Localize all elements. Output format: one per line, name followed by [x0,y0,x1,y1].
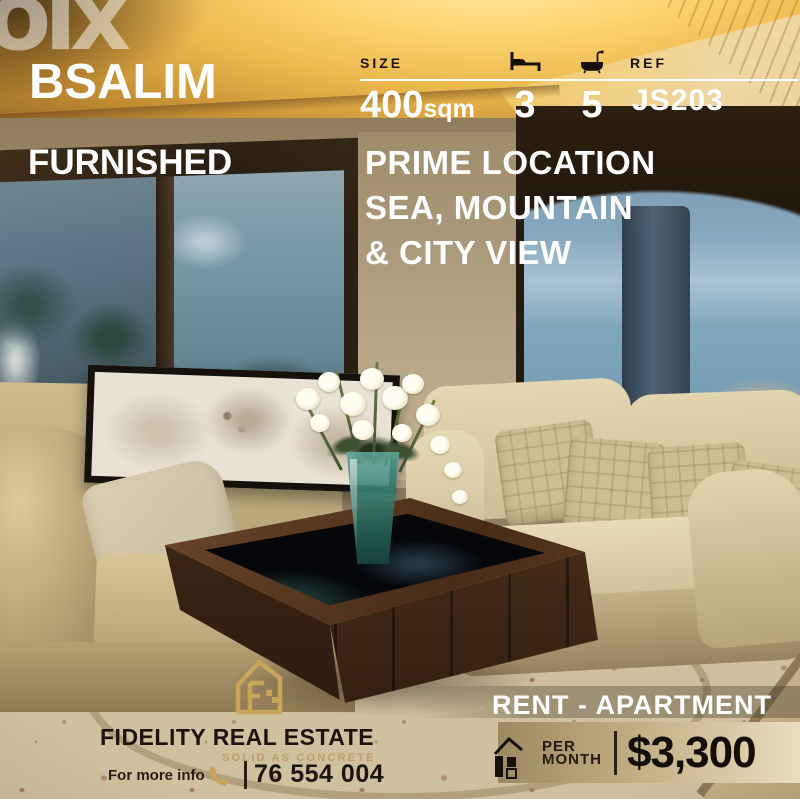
fidelity-house-logo [228,652,284,725]
bath-icon [572,49,612,80]
orchid-bloom [444,462,462,478]
orchid-bloom [360,368,384,390]
agency-name: FIDELITY REAL ESTATE [100,724,374,751]
orchid-bloom [340,392,366,416]
highlight-line-2: SEA, MOUNTAIN [365,185,656,230]
specs-divider-line [360,79,798,81]
orchid-bloom [452,490,468,504]
furnished-label: FURNISHED [28,143,232,183]
more-info-label: For more info [108,767,205,784]
orchid-bloom [402,374,424,394]
price-band: PER MONTH $3,300 [498,722,800,783]
price-divider [614,731,617,775]
orchid-bloom [352,420,374,440]
highlight-line-3: & CITY VIEW [365,230,656,275]
ref-label: REF [630,55,667,71]
orchid-bloom [416,404,440,426]
phone-divider [244,761,247,789]
size-value: 400sqm [360,84,475,127]
price-period: PER MONTH [542,740,602,766]
size-number: 400 [360,84,423,126]
period-line-2: MONTH [542,753,602,766]
orchid-bloom [318,372,340,392]
orchid-bloom [296,388,320,410]
price-amount: $3,300 [627,728,756,778]
house-icon [491,733,525,786]
listing-type-label: RENT - APARTMENT [492,690,772,721]
phone-icon [206,764,234,795]
phone-number: 76 554 004 [254,760,384,789]
size-unit: sqm [423,95,474,123]
location-title: BSALIM [29,54,217,110]
specs-bar: SIZE REF 400sqm 3 5 JS203 [360,55,798,117]
bed-icon [505,49,545,78]
right-sofa-arm [685,465,800,650]
ref-value: JS203 [632,84,724,118]
bedrooms-value: 3 [505,84,545,127]
orchid-bloom [430,436,450,454]
size-label: SIZE [360,55,403,71]
orchid-bloom [310,414,330,432]
orchid-bloom [392,424,412,442]
bathrooms-value: 5 [572,84,612,127]
highlight-line-1: PRIME LOCATION [365,140,656,185]
highlight-text: PRIME LOCATION SEA, MOUNTAIN & CITY VIEW [365,140,656,275]
real-estate-listing-ad: olx BSALIM FURNISHED SIZE REF 400sqm 3 5… [0,0,800,799]
